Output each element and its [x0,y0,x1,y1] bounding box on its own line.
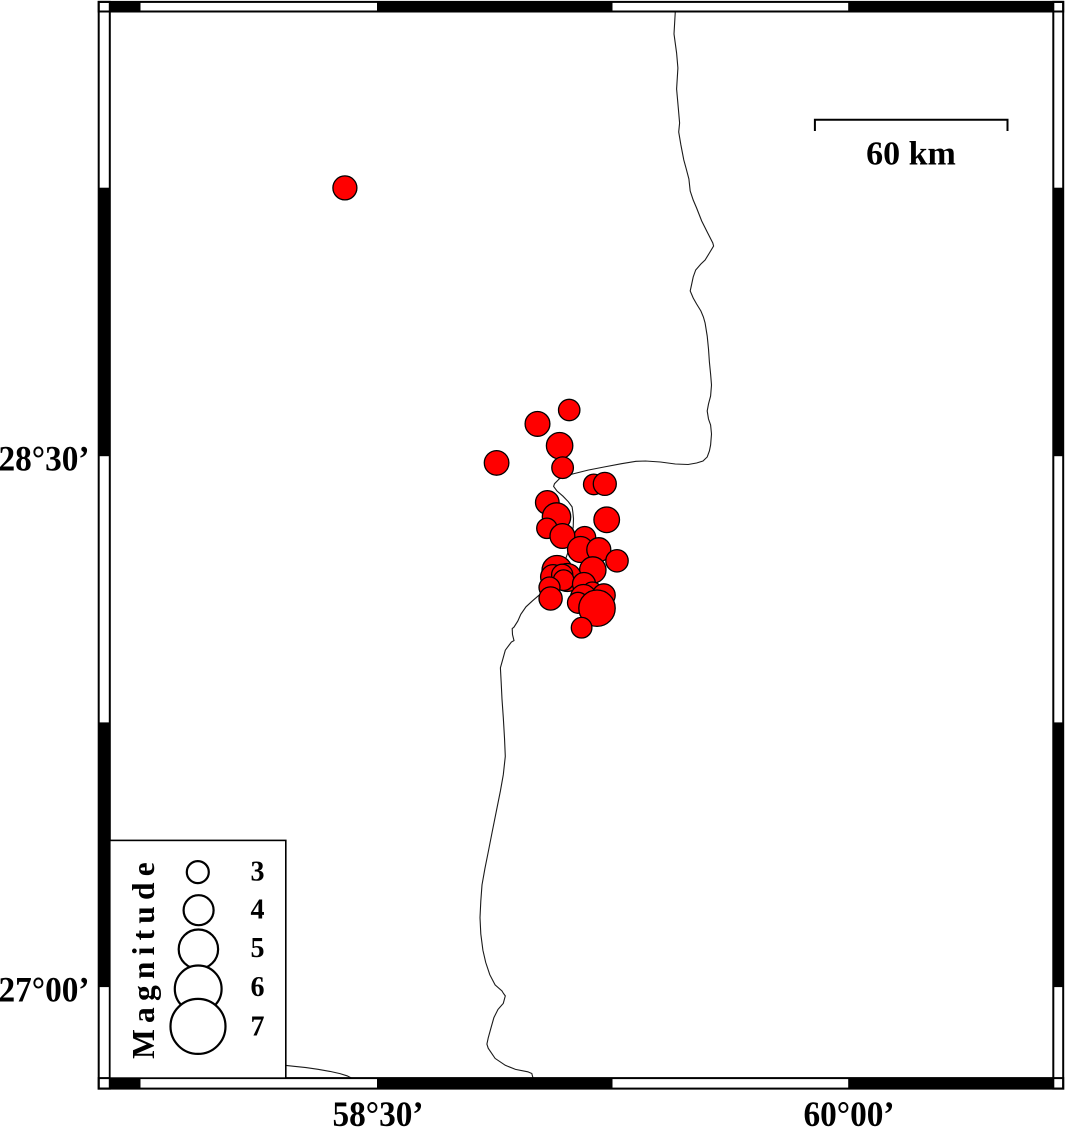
svg-text:4: 4 [251,894,265,925]
svg-text:28°30’: 28°30’ [0,439,90,479]
svg-text:5: 5 [251,933,265,964]
svg-text:58°30’: 58°30’ [333,1094,424,1127]
svg-text:60°00’: 60°00’ [804,1094,895,1127]
svg-text:7: 7 [251,1011,265,1042]
svg-text:3: 3 [251,857,265,888]
svg-text:27°00’: 27°00’ [0,970,90,1010]
svg-text:Magnitude: Magnitude [126,856,161,1059]
svg-text:60 km: 60 km [866,135,956,172]
svg-text:6: 6 [251,972,265,1003]
